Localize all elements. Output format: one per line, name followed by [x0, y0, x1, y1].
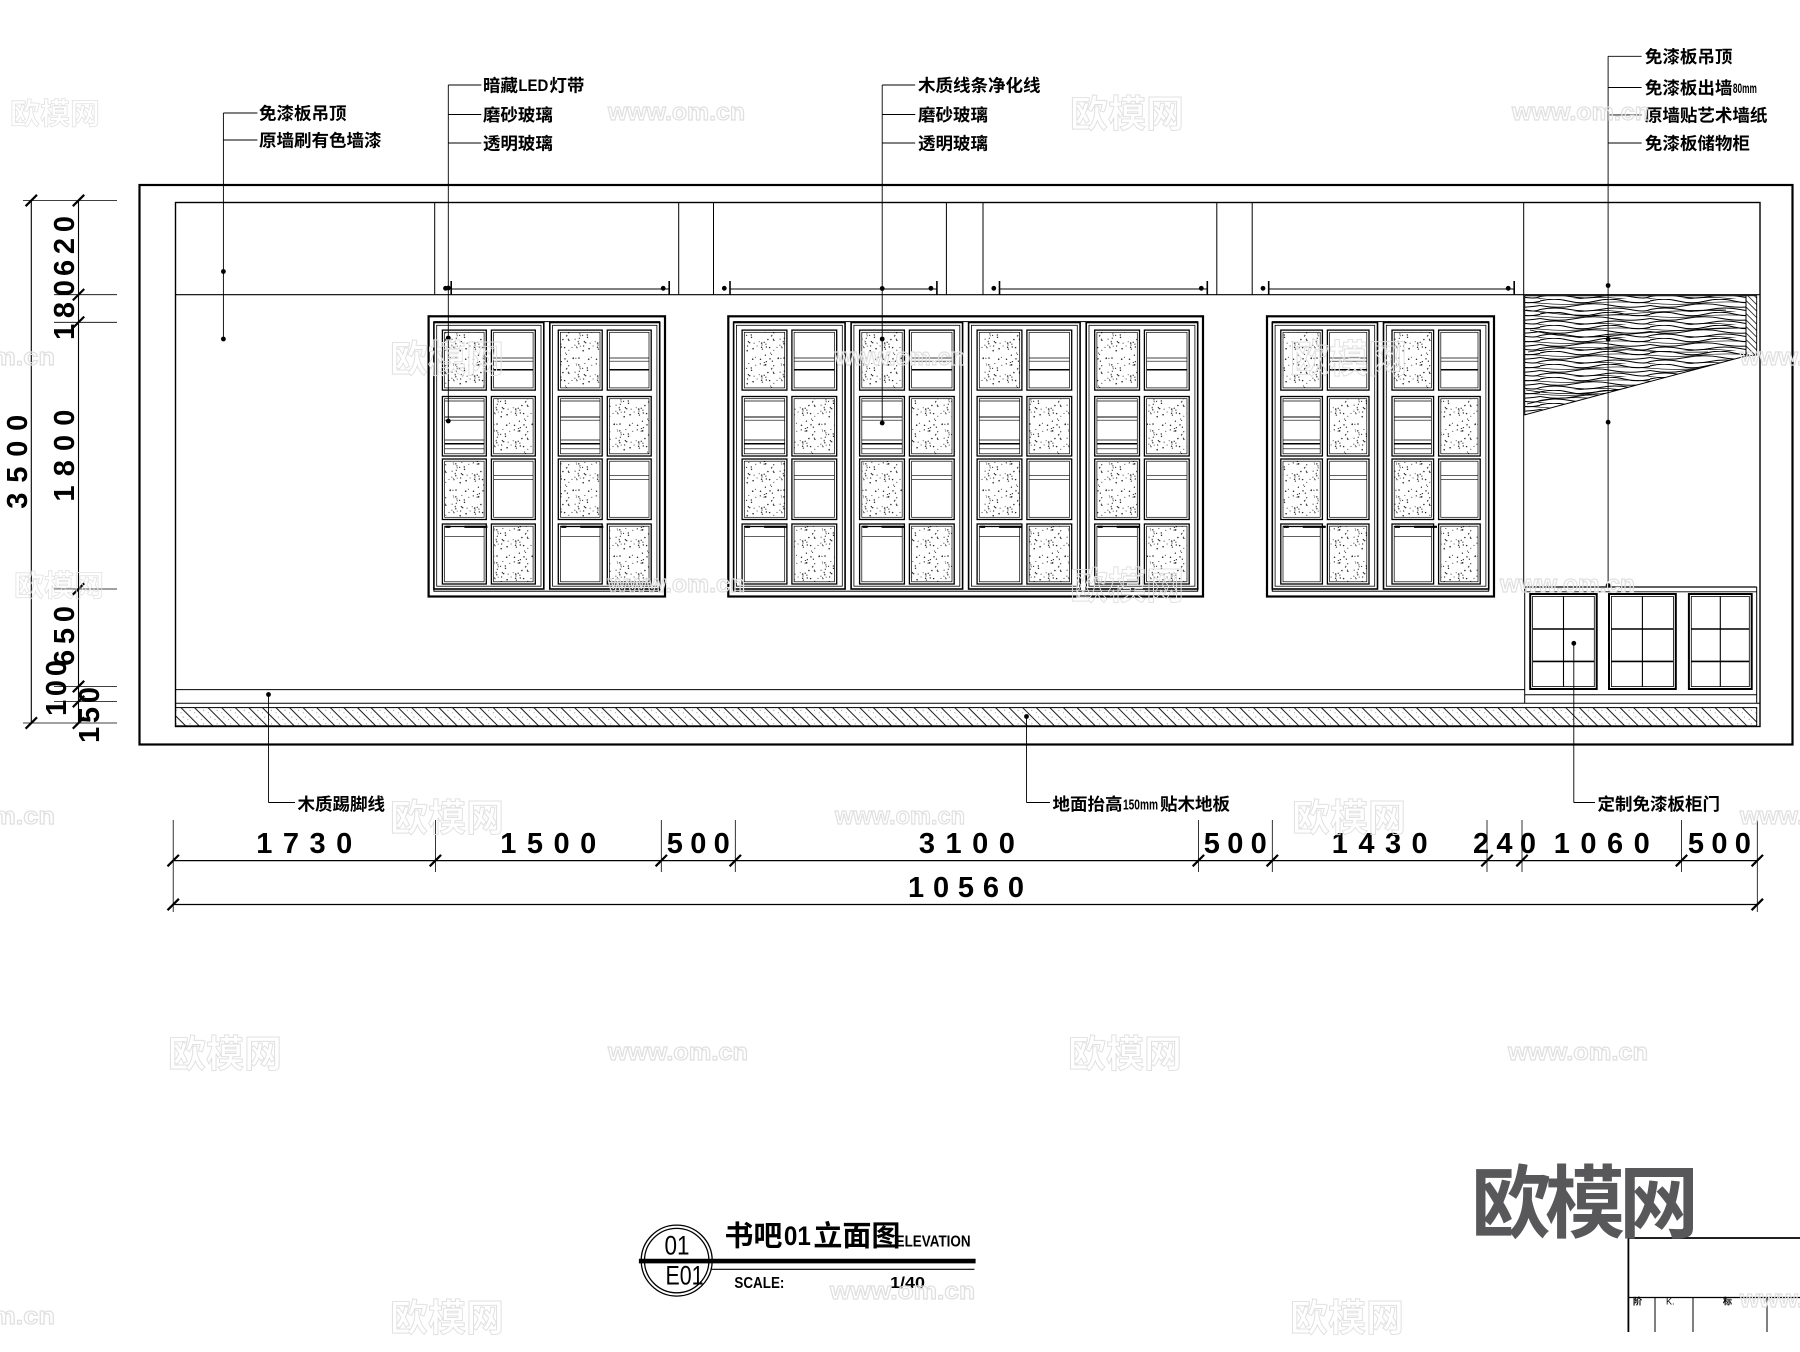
- svg-text:LED: LED: [518, 76, 548, 95]
- svg-text:www.om.cn: www.om.cn: [607, 1039, 748, 1066]
- svg-text:om.cn: om.cn: [0, 803, 55, 830]
- svg-text:180: 180: [49, 280, 81, 340]
- svg-text:150mm: 150mm: [1123, 797, 1158, 813]
- svg-text:标: 标: [1722, 1295, 1732, 1306]
- svg-text:SCALE:: SCALE:: [734, 1275, 784, 1292]
- svg-text:www.om.cn: www.om.cn: [1507, 1039, 1648, 1066]
- svg-text:01: 01: [665, 1231, 690, 1261]
- svg-text:500: 500: [1204, 828, 1267, 860]
- svg-text:100: 100: [41, 660, 73, 716]
- svg-text:www.om.cn: www.om.cn: [607, 99, 745, 126]
- svg-text:www.om.cn: www.om.cn: [834, 344, 965, 371]
- svg-text:K.: K.: [1666, 1297, 1675, 1307]
- svg-text:www.om.cn: www.om.cn: [1499, 571, 1635, 598]
- svg-text:om.cn: om.cn: [0, 344, 55, 371]
- svg-text:www.om.cn: www.om.cn: [829, 1278, 975, 1305]
- svg-text:150: 150: [74, 687, 106, 743]
- svg-text:240: 240: [1473, 828, 1536, 860]
- svg-text:01: 01: [784, 1221, 811, 1251]
- svg-text:www.om.cn: www.om.cn: [1739, 344, 1800, 371]
- svg-text:80mm: 80mm: [1733, 81, 1757, 96]
- svg-text:620: 620: [49, 216, 81, 276]
- svg-text:www.om.cn: www.om.cn: [834, 803, 965, 830]
- svg-text:om.cn: om.cn: [0, 1303, 55, 1330]
- svg-text:www.om.cn: www.om.cn: [1739, 1286, 1800, 1313]
- svg-text:www.om.cn: www.om.cn: [1511, 99, 1650, 126]
- svg-text:www.om.cn: www.om.cn: [1739, 803, 1800, 830]
- svg-text:500: 500: [667, 828, 730, 860]
- svg-text:E01: E01: [666, 1261, 704, 1291]
- svg-text:ELEVATION: ELEVATION: [896, 1234, 971, 1251]
- svg-text:www.om.cn: www.om.cn: [607, 571, 745, 598]
- svg-text:500: 500: [1688, 828, 1751, 860]
- svg-text:650: 650: [49, 606, 81, 666]
- svg-text:阶: 阶: [1633, 1295, 1643, 1306]
